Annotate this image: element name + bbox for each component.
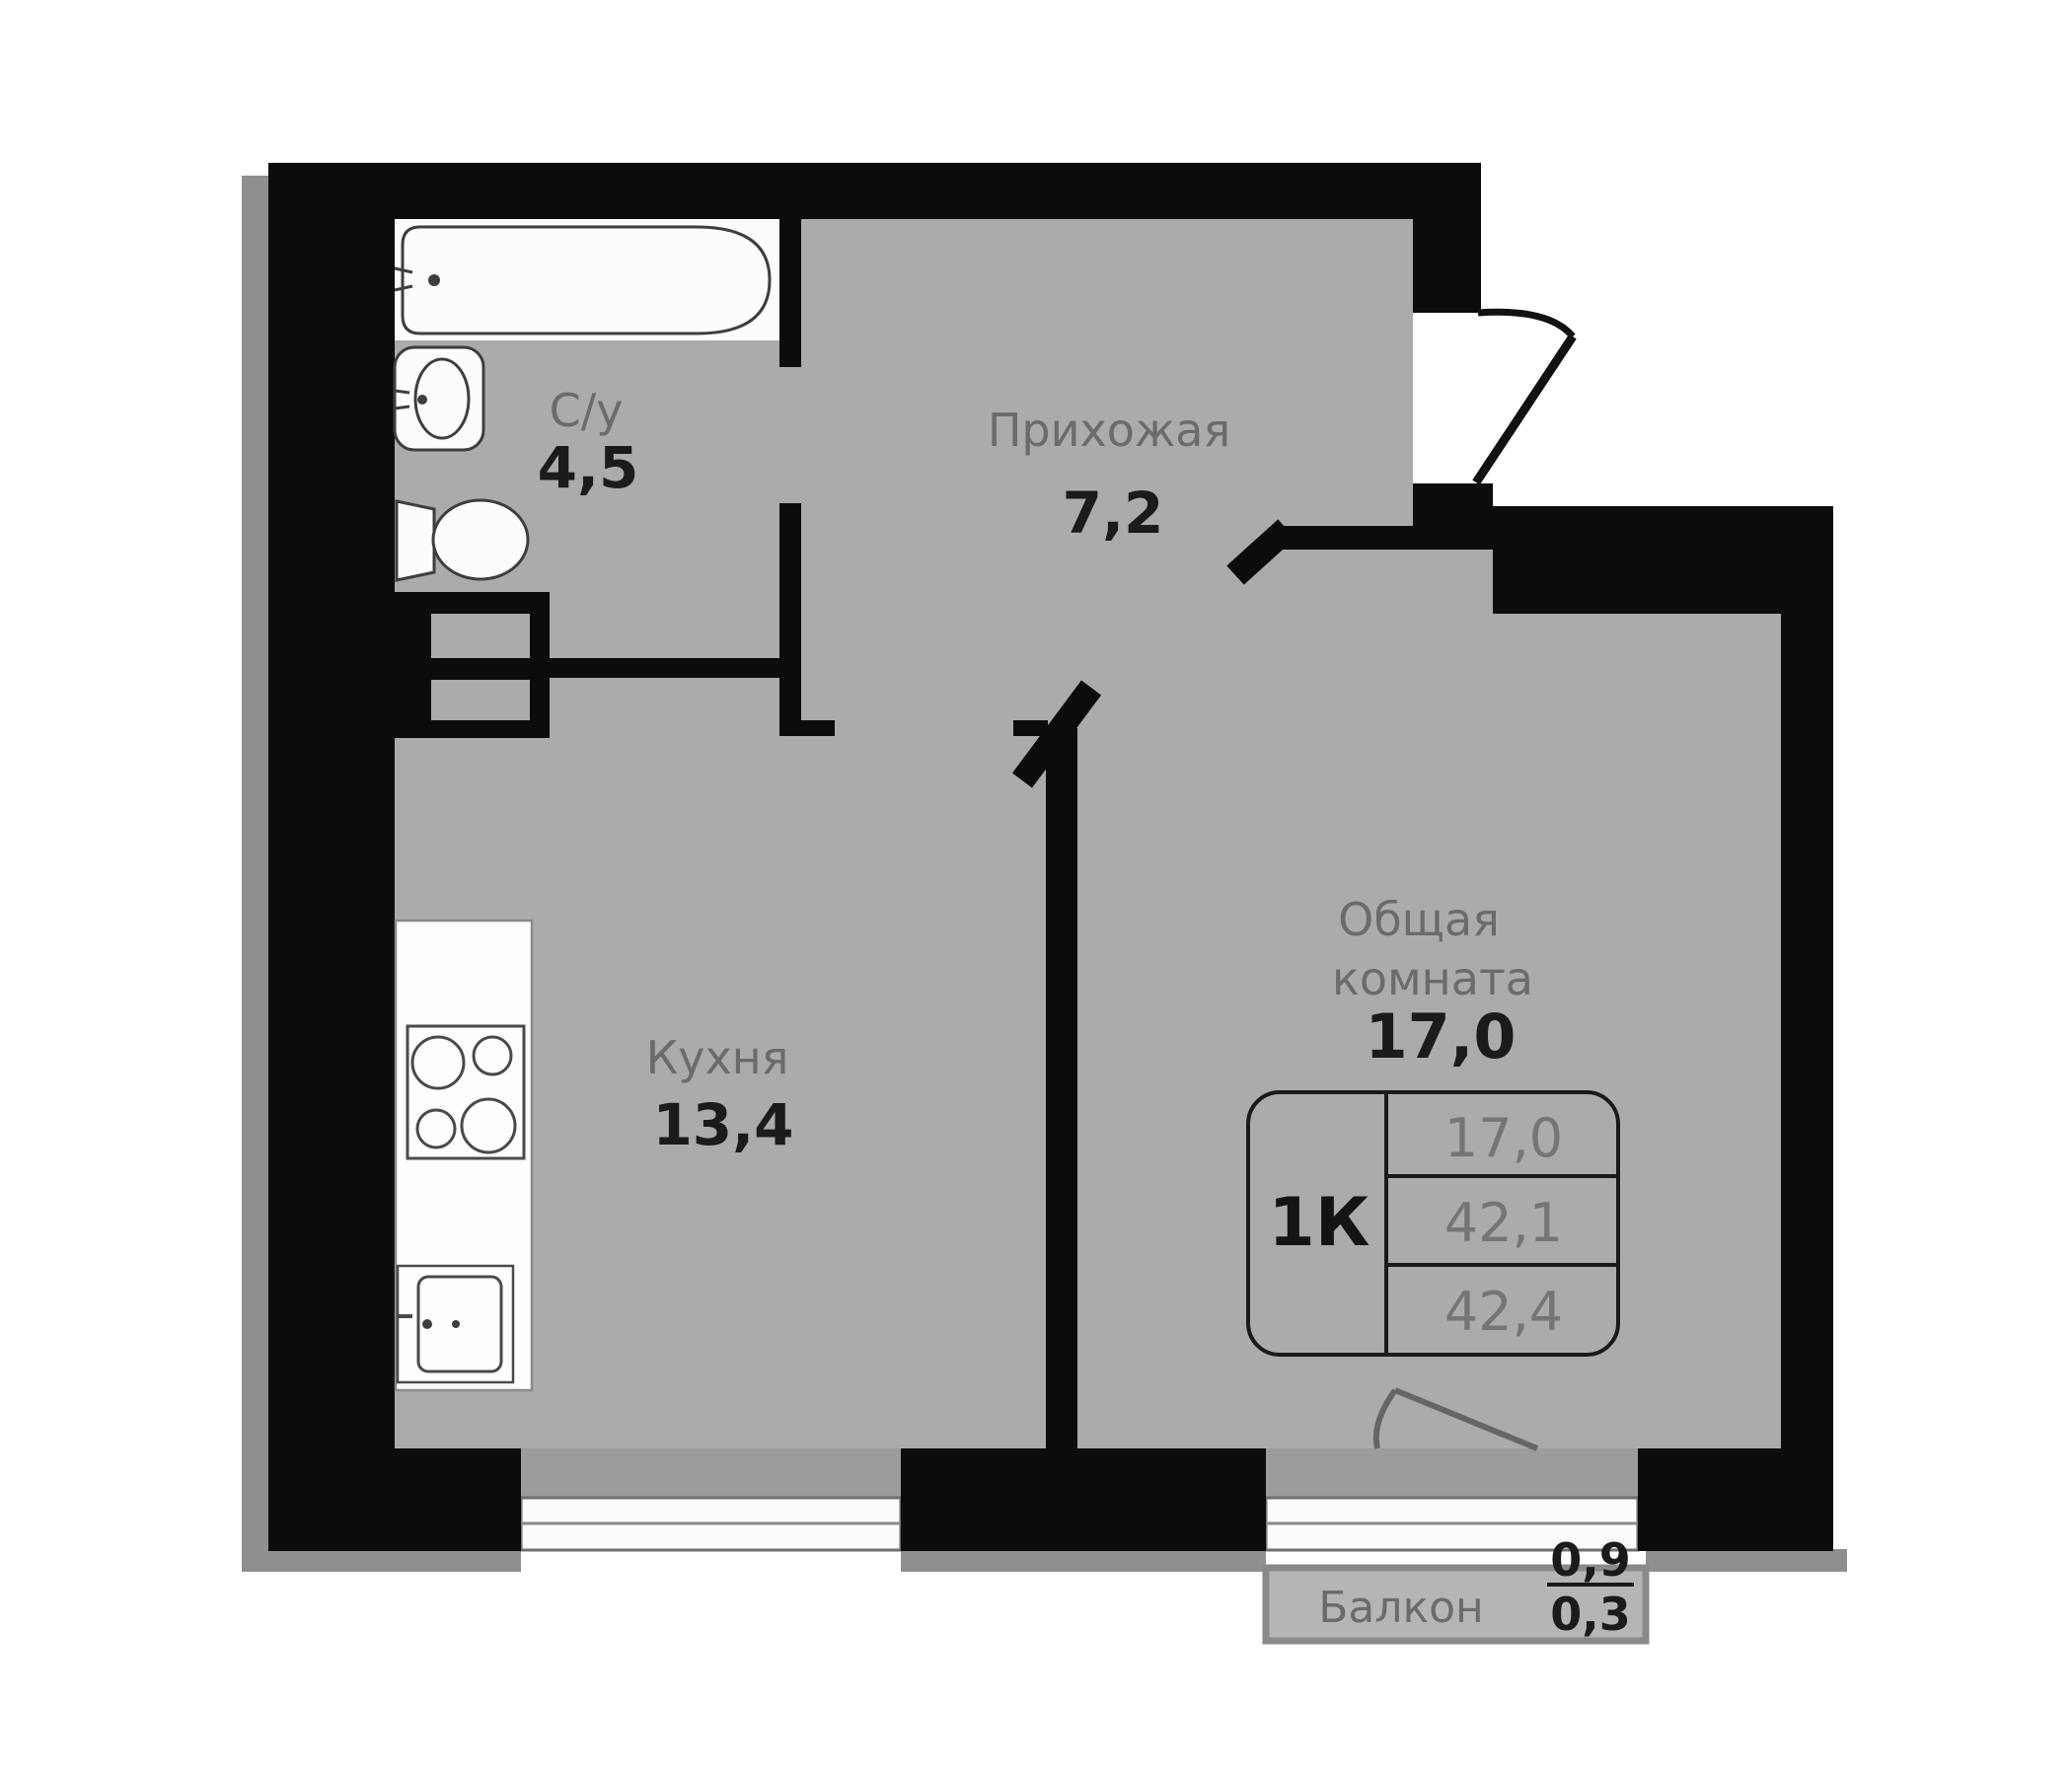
vent-shaft-icon <box>392 592 550 738</box>
table-row-total: 42,4 <box>1444 1281 1563 1343</box>
table-row-area: 42,1 <box>1444 1192 1563 1254</box>
balcony-area-bottom: 0,3 <box>1550 1588 1631 1641</box>
living-name-line2: комната <box>1332 952 1533 1005</box>
kitchen-sink-icon <box>398 1266 513 1382</box>
kitchen-fixtures <box>396 921 532 1390</box>
toilet-icon <box>397 500 528 580</box>
living-area: 17,0 <box>1366 1000 1517 1073</box>
balcony-name: Балкон <box>1318 1583 1484 1633</box>
floor-plan-canvas: С/у 4,5 Прихожая 7,2 Кухня 13,4 Общая ко… <box>0 0 2072 1776</box>
stove-icon <box>407 1026 524 1158</box>
table-apartment-type: 1К <box>1269 1184 1370 1262</box>
floor-plan: С/у 4,5 Прихожая 7,2 Кухня 13,4 Общая ко… <box>0 0 2072 1776</box>
sink-icon <box>395 347 483 450</box>
table-row-living: 17,0 <box>1444 1107 1563 1169</box>
living-name-line1: Общая <box>1338 893 1500 946</box>
kitchen-name: Кухня <box>646 1031 789 1084</box>
balcony-area-top: 0,9 <box>1550 1533 1631 1587</box>
bathroom-area: 4,5 <box>538 434 639 501</box>
hallway-area: 7,2 <box>1063 480 1164 547</box>
bathroom-name: С/у <box>550 384 624 437</box>
hallway-name: Прихожая <box>988 404 1230 457</box>
bathtub-icon <box>395 227 770 333</box>
kitchen-area: 13,4 <box>652 1091 793 1158</box>
